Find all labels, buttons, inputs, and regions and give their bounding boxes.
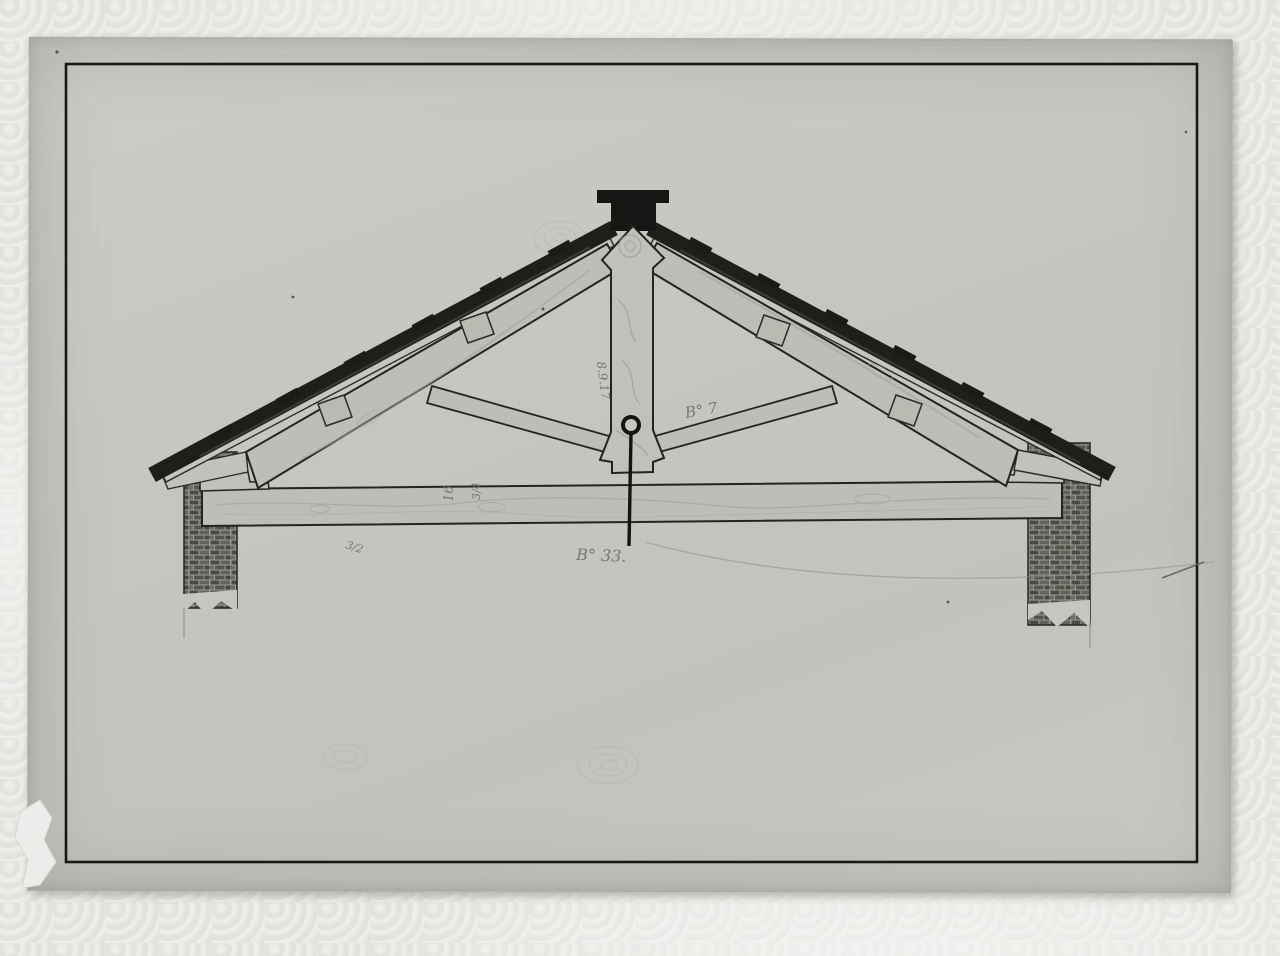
annotation-beam-fraction: 3/2 (344, 538, 365, 556)
roof-covering-right (650, 228, 1112, 474)
strut-left (427, 386, 616, 454)
strut-right (648, 386, 837, 454)
common-rafter-right (650, 238, 1104, 480)
roof-covering-left (152, 228, 614, 475)
principal-rafter-right (643, 243, 1018, 486)
photo-of-truss-drawing: 8.9.17 B° 7 16 3/4 3/2 B° 33. (0, 0, 1280, 956)
annotation-bottom-label: B° 33. (575, 545, 627, 566)
tie-beam (200, 465, 1064, 526)
annotation-kingpost-date: 8.9.17 (594, 361, 613, 401)
principal-rafter-left (246, 244, 621, 488)
annotation-beam-dim-2: 3/4 (470, 482, 483, 500)
pencil-arc (645, 542, 1214, 578)
common-rafter-left (162, 238, 614, 482)
styrofoam-chip (15, 800, 56, 888)
truss-drawing-layer: 8.9.17 B° 7 16 3/4 3/2 B° 33. (0, 0, 1280, 956)
annotation-beam-dim-1: 16 (442, 485, 457, 502)
